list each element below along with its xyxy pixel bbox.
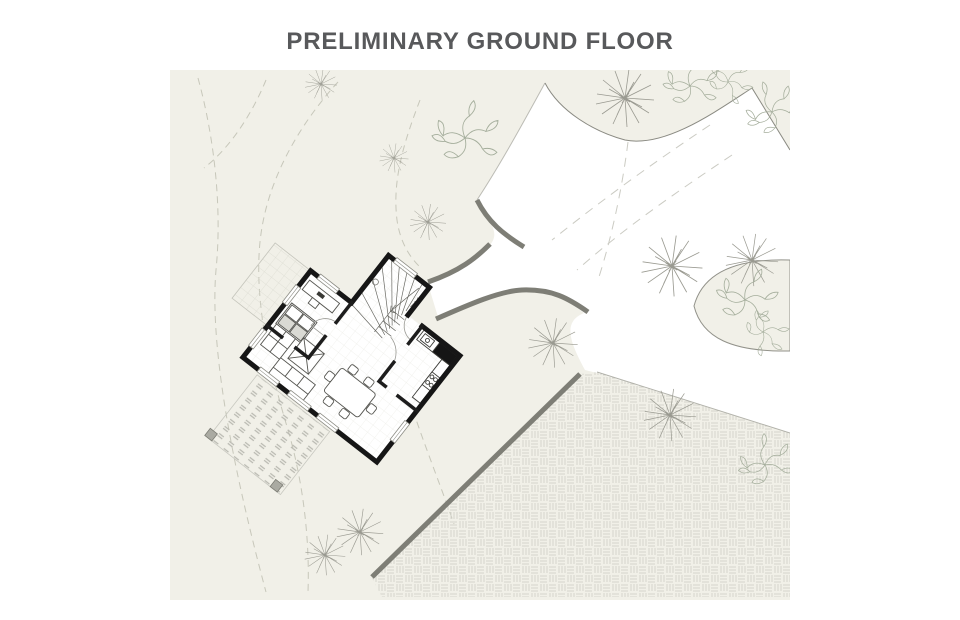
- site-plan-drawing: [170, 70, 790, 600]
- page-title: PRELIMINARY GROUND FLOOR: [0, 28, 960, 56]
- floor-plan-page: PRELIMINARY GROUND FLOOR: [0, 0, 960, 620]
- site-plan-canvas: [170, 70, 790, 600]
